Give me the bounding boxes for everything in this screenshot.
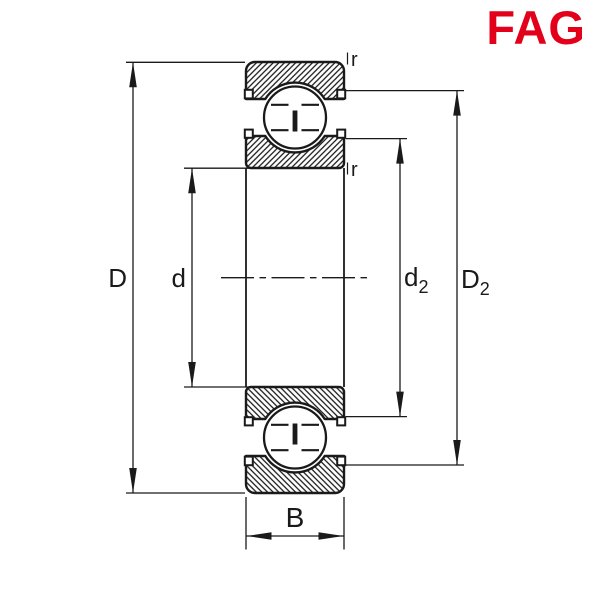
dimension-label-B: B (286, 502, 305, 533)
dimension-B: B (246, 497, 344, 550)
radius-label-outer: r (348, 49, 359, 71)
svg-text:r: r (351, 159, 358, 181)
bearing-technical-drawing: D d d2 D2 B r (0, 0, 600, 600)
svg-text:r: r (351, 49, 358, 71)
dimension-d2: d2 (346, 139, 428, 417)
bearing-section-top (245, 62, 345, 168)
dimension-label-d2: d2 (404, 262, 428, 297)
dimension-label-d: d (172, 263, 186, 293)
bearing-section-bottom (245, 387, 345, 493)
radius-label-bore: r (348, 159, 359, 181)
dimension-label-D2: D2 (461, 264, 490, 299)
dimension-label-D: D (108, 263, 127, 293)
fag-logo: FAG (486, 1, 586, 54)
bearing-drawing-page: D d d2 D2 B r (0, 0, 600, 600)
